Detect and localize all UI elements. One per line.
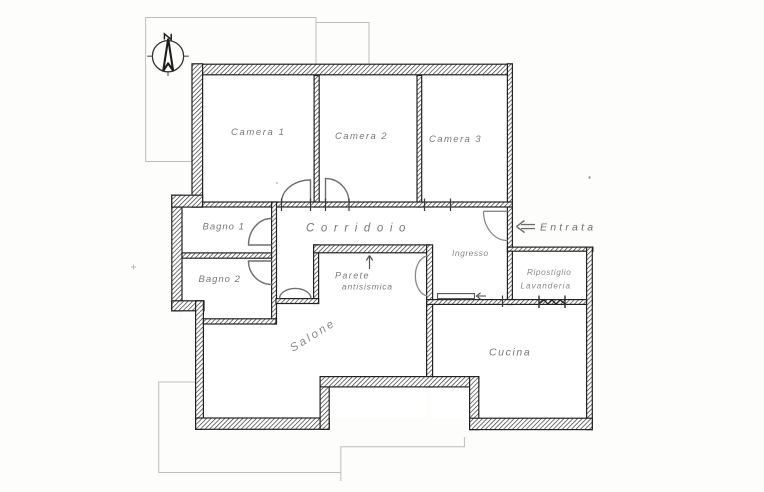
svg-text:Corridoio: Corridoio: [306, 223, 412, 235]
svg-text:Parete: Parete: [335, 271, 370, 281]
svg-text:Ripostiglio: Ripostiglio: [527, 268, 571, 277]
svg-text:Ingresso: Ingresso: [452, 248, 489, 258]
svg-text:Lavanderia: Lavanderia: [521, 282, 572, 291]
svg-text:Camera 1: Camera 1: [231, 127, 286, 138]
svg-text:Bagno 1: Bagno 1: [203, 222, 245, 233]
svg-text:Camera 2: Camera 2: [335, 131, 388, 142]
svg-text:Cucina: Cucina: [489, 347, 531, 359]
svg-text:Bagno 2: Bagno 2: [199, 274, 241, 285]
svg-text:Entrata: Entrata: [540, 222, 596, 234]
svg-text:antisismica: antisismica: [342, 282, 393, 292]
svg-text:Camera 3: Camera 3: [429, 134, 482, 145]
